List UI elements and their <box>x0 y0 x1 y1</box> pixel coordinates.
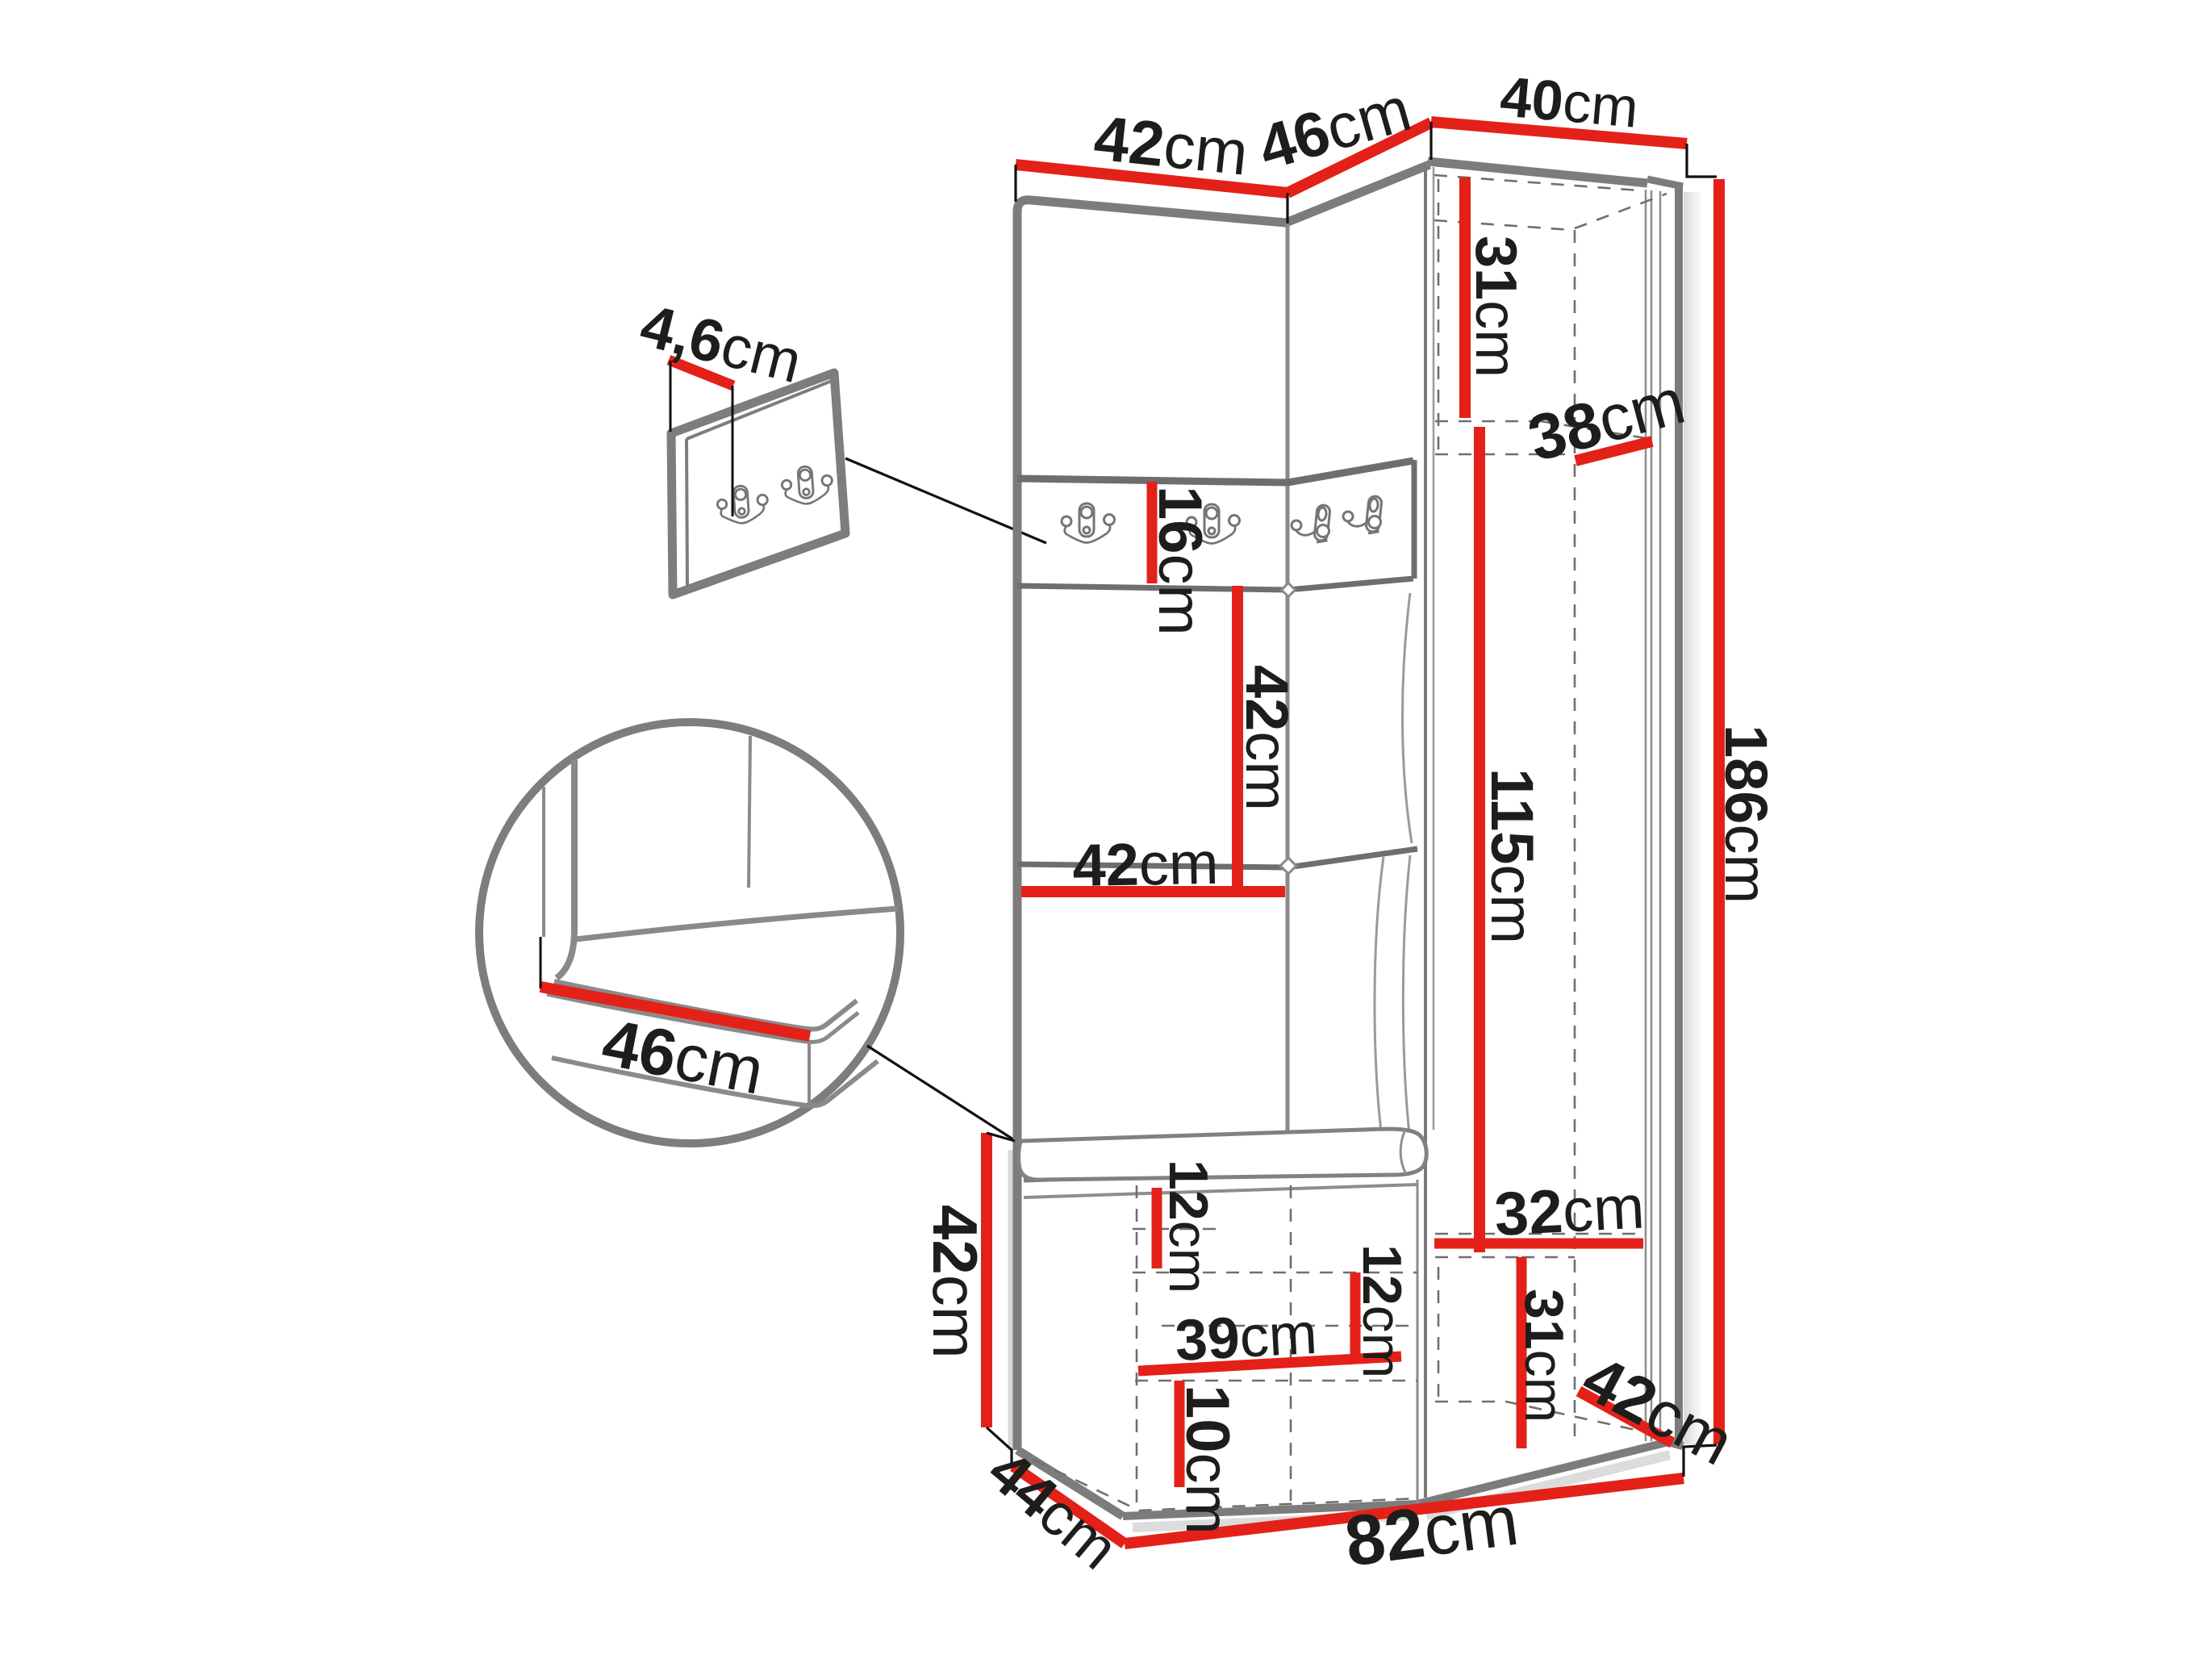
svg-text:39cm: 39cm <box>1174 1302 1319 1373</box>
svg-text:186cm: 186cm <box>1713 725 1780 904</box>
svg-text:10cm: 10cm <box>1173 1385 1242 1535</box>
svg-text:42cm: 42cm <box>1072 829 1219 899</box>
svg-text:40cm: 40cm <box>1498 65 1641 140</box>
svg-text:32cm: 32cm <box>1492 1172 1646 1249</box>
svg-text:42cm: 42cm <box>1233 665 1300 811</box>
svg-text:16cm: 16cm <box>1146 486 1214 636</box>
svg-text:42cm: 42cm <box>920 1205 991 1359</box>
svg-text:12cm: 12cm <box>1351 1244 1413 1378</box>
svg-text:115cm: 115cm <box>1479 768 1546 944</box>
svg-text:31cm: 31cm <box>1463 236 1528 378</box>
svg-text:12cm: 12cm <box>1158 1160 1219 1293</box>
svg-text:31cm: 31cm <box>1513 1289 1575 1423</box>
